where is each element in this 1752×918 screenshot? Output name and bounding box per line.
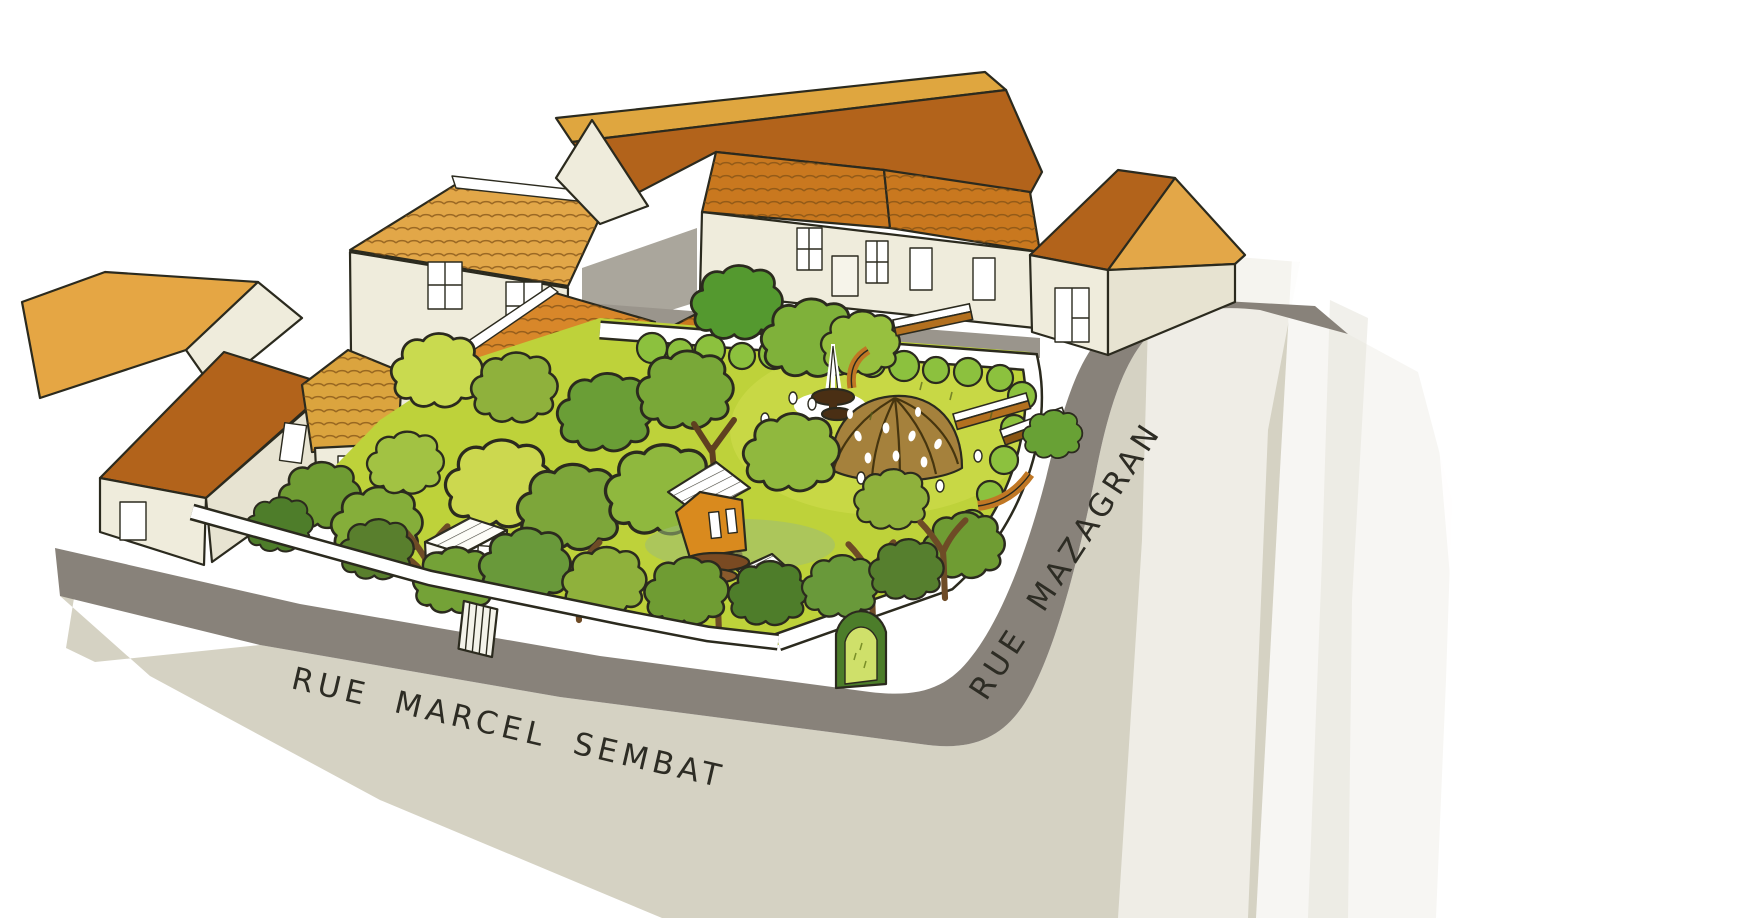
tree bbox=[869, 539, 943, 599]
door bbox=[832, 256, 858, 296]
tree bbox=[743, 413, 839, 490]
window bbox=[910, 248, 932, 290]
watercolor-wash bbox=[1118, 250, 1600, 918]
tree bbox=[854, 469, 928, 529]
tree bbox=[644, 557, 728, 625]
tree bbox=[637, 351, 733, 428]
arched-gateway bbox=[836, 611, 886, 688]
window bbox=[973, 258, 995, 300]
tree bbox=[728, 561, 807, 625]
tree bbox=[391, 333, 482, 407]
treehouse-window bbox=[709, 512, 722, 539]
window bbox=[279, 423, 306, 464]
tree bbox=[367, 432, 444, 494]
tree bbox=[802, 555, 879, 617]
treehouse-window bbox=[726, 509, 737, 534]
site-sketch-illustration: RUE MARCEL SEMBAT RUE MAZAGRAN bbox=[0, 0, 1752, 918]
window bbox=[120, 502, 146, 540]
tree bbox=[471, 353, 557, 423]
garden-gate bbox=[458, 601, 498, 657]
tree bbox=[1023, 410, 1083, 458]
